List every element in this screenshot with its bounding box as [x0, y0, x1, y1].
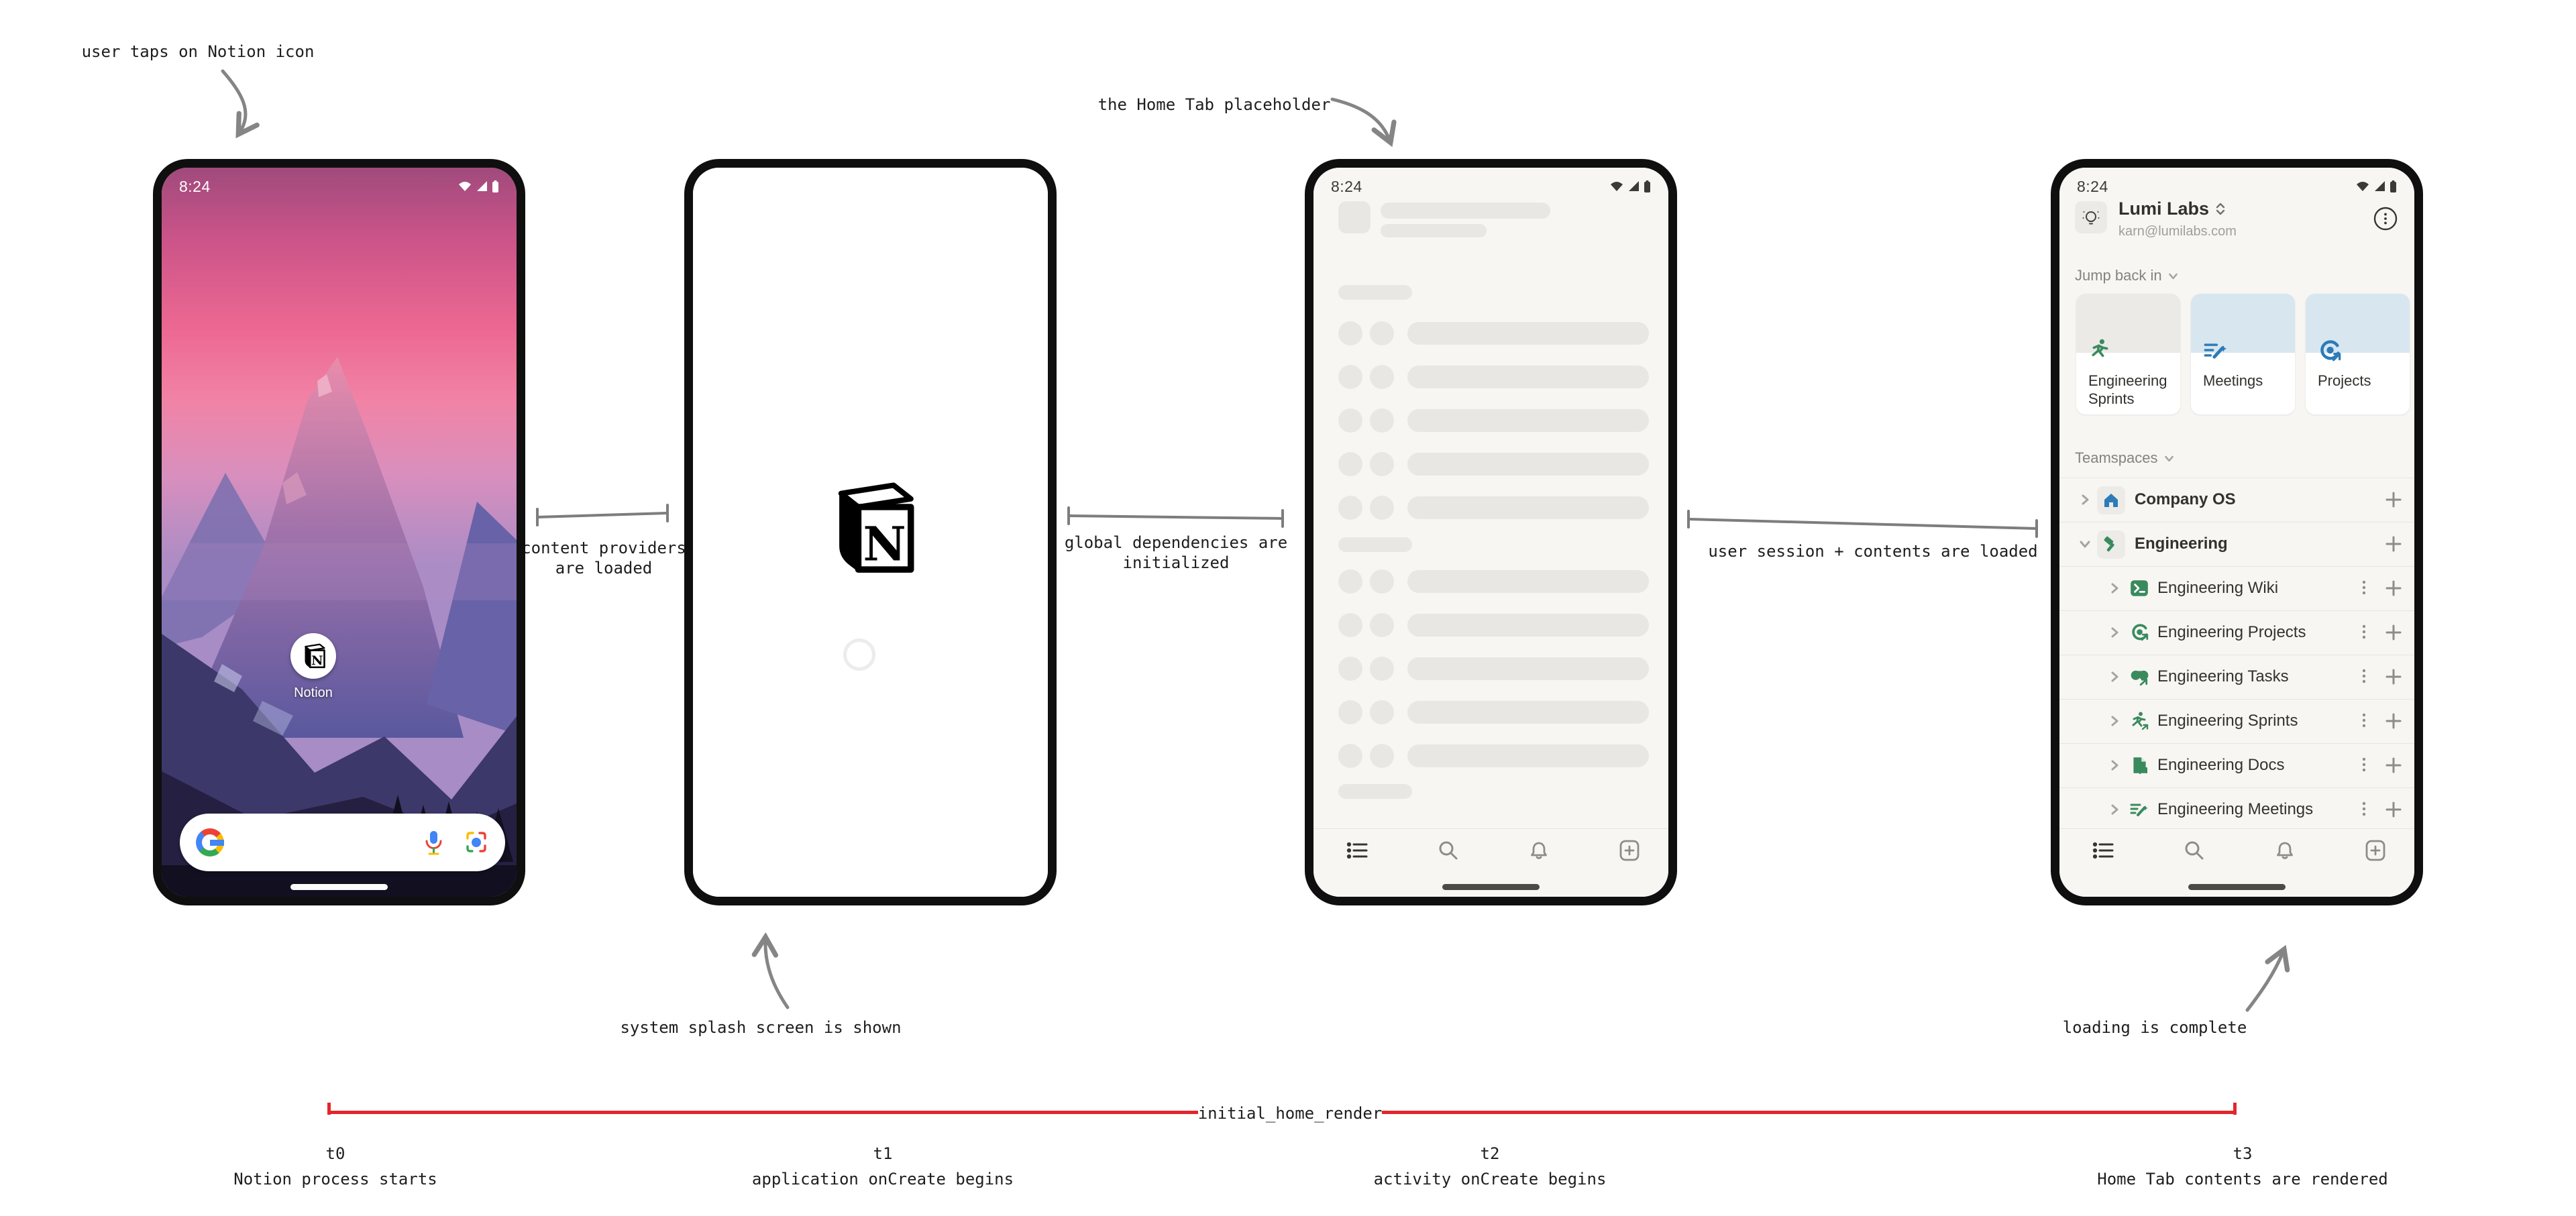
- page-row-engineering-meetings[interactable]: Engineering Meetings: [2059, 788, 2414, 832]
- card-meetings[interactable]: Meetings: [2191, 294, 2295, 414]
- page-row-engineering-projects[interactable]: Engineering Projects: [2059, 611, 2414, 655]
- phone-home-screen: 8:24 Notion: [153, 159, 525, 905]
- note-user-session: user session + contents are loaded: [1708, 541, 2037, 561]
- wifi-icon: [459, 181, 472, 192]
- projects-icon: [2318, 338, 2342, 362]
- note-user-taps: user taps on Notion icon: [82, 42, 315, 62]
- status-bar: 8:24: [162, 173, 517, 200]
- note-content-providers: content providers are loaded: [521, 538, 686, 578]
- nav-divider: [2059, 828, 2414, 829]
- add-page-button[interactable]: [2383, 577, 2404, 599]
- row-menu-button[interactable]: [2353, 577, 2375, 599]
- note-loading-complete: loading is complete: [2063, 1017, 2247, 1038]
- battery-icon: [2390, 180, 2397, 193]
- timeline-t3-desc: Home Tab contents are rendered: [2097, 1170, 2387, 1189]
- google-logo-icon: [196, 828, 224, 856]
- add-page-button[interactable]: [2383, 799, 2404, 820]
- workspace-email: karn@lumilabs.com: [2118, 224, 2237, 239]
- skeleton-row-bar: [1407, 614, 1649, 637]
- chevron-right-icon[interactable]: [2078, 493, 2092, 506]
- workspace-icon[interactable]: [2075, 201, 2107, 233]
- chevron-right-icon[interactable]: [2108, 582, 2121, 595]
- chevron-right-icon[interactable]: [2108, 803, 2121, 816]
- timeline-end-tick: [2233, 1103, 2237, 1115]
- row-menu-button[interactable]: [2353, 710, 2375, 732]
- skeleton-row-dot: [1370, 496, 1394, 520]
- skeleton-row-dot: [1338, 496, 1362, 520]
- measure-line-global-deps: [1069, 508, 1283, 527]
- nav-notifications-tab[interactable]: [2270, 836, 2300, 865]
- skeleton-row-dot: [1338, 613, 1362, 637]
- phone-home-tab-loaded: 8:24 Lumi Labs karn@lumilabs.com: [2051, 159, 2423, 905]
- skeleton-row-dot: [1370, 569, 1394, 594]
- timeline-t1: t1: [873, 1144, 893, 1163]
- row-menu-button[interactable]: [2353, 666, 2375, 687]
- timeline-t0-desc: Notion process starts: [233, 1170, 437, 1189]
- lightbulb-icon: [2082, 209, 2100, 226]
- skeleton-row-dot: [1338, 321, 1362, 345]
- add-page-button[interactable]: [2383, 489, 2404, 510]
- timeline-segment-left: [329, 1111, 1198, 1114]
- more-options-button[interactable]: [2372, 205, 2399, 232]
- skeleton-row-dot: [1370, 700, 1394, 724]
- skeleton-row-dot: [1370, 365, 1394, 389]
- skeleton-section-label: [1338, 285, 1412, 300]
- skeleton-row-dot: [1338, 744, 1362, 768]
- chevron-right-icon[interactable]: [2108, 670, 2121, 683]
- skeleton-row-dot: [1338, 569, 1362, 594]
- notion-logo: [816, 474, 924, 582]
- wifi-icon: [1611, 181, 1623, 192]
- timeline-segment-right: [1382, 1111, 2235, 1114]
- nav-divider: [1313, 828, 1668, 829]
- row-menu-button[interactable]: [2353, 799, 2375, 820]
- teamspace-row-engineering[interactable]: Engineering: [2059, 522, 2414, 566]
- home-icon: [2097, 486, 2125, 514]
- skeleton-row-bar: [1407, 453, 1649, 476]
- timeline-t2: t2: [1481, 1144, 1500, 1163]
- page-row-engineering-wiki[interactable]: Engineering Wiki: [2059, 567, 2414, 610]
- meeting-notes-icon: [2129, 799, 2149, 820]
- skeleton-row-bar: [1407, 657, 1649, 680]
- skeleton-row-dot: [1338, 657, 1362, 681]
- status-time: 8:24: [1331, 178, 1362, 196]
- runner-icon: [2088, 338, 2112, 362]
- skeleton-row-dot: [1338, 408, 1362, 433]
- skeleton-row-bar: [1407, 701, 1649, 724]
- skeleton-title-bar: [1381, 203, 1550, 219]
- home-screen-wallpaper: 8:24 Notion: [162, 168, 517, 897]
- note-home-tab-placeholder: the Home Tab placeholder: [1098, 95, 1331, 115]
- nav-search-tab[interactable]: [2180, 836, 2209, 865]
- card-projects[interactable]: Projects: [2306, 294, 2410, 414]
- phone-splash-screen: [684, 159, 1057, 905]
- workspace-name: Lumi Labs: [2118, 199, 2209, 219]
- note-global-deps: global dependencies are initialized: [1065, 533, 1287, 573]
- document-icon: [2129, 755, 2149, 775]
- skeleton-row-bar: [1407, 496, 1649, 519]
- skeleton-row-dot: [1370, 408, 1394, 433]
- status-bar: 8:24: [2059, 173, 2414, 200]
- battery-icon: [492, 180, 499, 193]
- signal-icon: [476, 181, 488, 192]
- skeleton-row-dot: [1338, 700, 1362, 724]
- chevron-right-icon[interactable]: [2108, 759, 2121, 772]
- home-indicator[interactable]: [1442, 884, 1540, 890]
- workspace-sort-icon: [2214, 202, 2226, 216]
- bottom-nav: [1313, 836, 1668, 865]
- skeleton-row-dot: [1338, 365, 1362, 389]
- loading-spinner: [843, 639, 875, 671]
- measure-line-content-providers: [537, 505, 667, 525]
- skeleton-row-dot: [1370, 613, 1394, 637]
- section-jump-back-in[interactable]: Jump back in: [2075, 267, 2179, 284]
- skeleton-row-dot: [1370, 321, 1394, 345]
- nav-create-tab[interactable]: [2361, 836, 2390, 865]
- skeleton-row-bar: [1407, 409, 1649, 432]
- hammer-icon: [2097, 531, 2125, 559]
- nav-search-tab[interactable]: [1434, 836, 1463, 865]
- timeline-t3: t3: [2233, 1144, 2253, 1163]
- timeline-title: initial_home_render: [1198, 1104, 1383, 1123]
- notion-app-shortcut[interactable]: Notion: [269, 633, 358, 701]
- home-indicator[interactable]: [290, 884, 388, 890]
- chevron-right-icon[interactable]: [2108, 626, 2121, 639]
- add-page-button[interactable]: [2383, 710, 2404, 732]
- arrow-tap: [223, 71, 246, 131]
- timeline-t0: t0: [326, 1144, 345, 1163]
- signal-icon: [2374, 181, 2385, 192]
- status-time: 8:24: [2077, 178, 2108, 196]
- phone-home-tab-placeholder: 8:24: [1305, 159, 1677, 905]
- add-page-button[interactable]: [2383, 533, 2404, 555]
- skeleton-section-label: [1338, 537, 1412, 552]
- teamspace-row-company-os[interactable]: Company OS: [2059, 478, 2414, 522]
- nav-create-tab[interactable]: [1615, 836, 1644, 865]
- ellipsis-circle-icon: [2372, 205, 2399, 232]
- note-splash-shown: system splash screen is shown: [620, 1017, 901, 1038]
- mountain-wallpaper: [162, 168, 517, 897]
- runner-icon: [2129, 711, 2149, 731]
- binoculars-icon: [2129, 667, 2149, 687]
- startup-timeline-diagram: N: [0, 0, 2576, 1216]
- workspace-switcher[interactable]: Lumi Labs: [2118, 199, 2226, 219]
- target-icon: [2129, 622, 2149, 643]
- status-time: 8:24: [179, 178, 211, 196]
- row-menu-button[interactable]: [2353, 622, 2375, 643]
- nav-home-tab[interactable]: [1343, 836, 1373, 865]
- home-indicator[interactable]: [2188, 884, 2286, 890]
- google-lens-icon[interactable]: [464, 830, 489, 855]
- skeleton-row-dot: [1370, 744, 1394, 768]
- add-page-button[interactable]: [2383, 666, 2404, 687]
- card-title: Meetings: [2203, 372, 2288, 390]
- battery-icon: [1644, 180, 1651, 193]
- skeleton-row-bar: [1407, 366, 1649, 388]
- arrow-loading: [2247, 952, 2283, 1010]
- skeleton-row-dot: [1370, 452, 1394, 476]
- chevron-down-icon: [2163, 453, 2175, 464]
- chevron-down-icon[interactable]: [2078, 537, 2092, 551]
- add-page-button[interactable]: [2383, 622, 2404, 643]
- page-row-engineering-tasks[interactable]: Engineering Tasks: [2059, 655, 2414, 699]
- status-bar: 8:24: [1313, 173, 1668, 200]
- mic-icon[interactable]: [423, 829, 443, 856]
- arrow-splash: [765, 940, 788, 1007]
- measure-line-user-session: [1688, 511, 2037, 537]
- arrow-home-tab: [1332, 99, 1389, 140]
- skeleton-row-bar: [1407, 322, 1649, 345]
- page-row-engineering-docs[interactable]: Engineering Docs: [2059, 744, 2414, 787]
- card-engineering-sprints[interactable]: Engineering Sprints: [2076, 294, 2180, 414]
- bottom-nav: [2059, 836, 2414, 865]
- skeleton-row-bar: [1407, 570, 1649, 593]
- nav-notifications-tab[interactable]: [1524, 836, 1554, 865]
- google-search-bar[interactable]: [180, 814, 505, 871]
- skeleton-section-label: [1338, 784, 1412, 799]
- timeline-t2-desc: activity onCreate begins: [1374, 1170, 1607, 1189]
- wifi-icon: [2357, 181, 2369, 192]
- chevron-down-icon: [2167, 270, 2179, 282]
- nav-home-tab[interactable]: [2089, 836, 2118, 865]
- skeleton-row-dot: [1338, 452, 1362, 476]
- chevron-right-icon[interactable]: [2108, 714, 2121, 728]
- add-page-button[interactable]: [2383, 755, 2404, 776]
- skeleton-row-bar: [1407, 744, 1649, 767]
- row-menu-button[interactable]: [2353, 755, 2375, 776]
- card-title: Engineering Sprints: [2088, 372, 2173, 408]
- app-shortcut-label: Notion: [269, 685, 358, 701]
- skeleton-row-dot: [1370, 657, 1394, 681]
- card-title: Projects: [2318, 372, 2403, 390]
- skeleton-subtitle-bar: [1381, 224, 1487, 237]
- timeline-t1-desc: application onCreate begins: [752, 1170, 1014, 1189]
- signal-icon: [1628, 181, 1640, 192]
- notion-app-icon[interactable]: [290, 633, 336, 679]
- section-teamspaces[interactable]: Teamspaces: [2075, 449, 2175, 467]
- page-row-engineering-sprints[interactable]: Engineering Sprints: [2059, 700, 2414, 743]
- meeting-notes-icon: [2203, 338, 2227, 362]
- terminal-icon: [2129, 578, 2149, 598]
- skeleton-avatar: [1338, 201, 1371, 233]
